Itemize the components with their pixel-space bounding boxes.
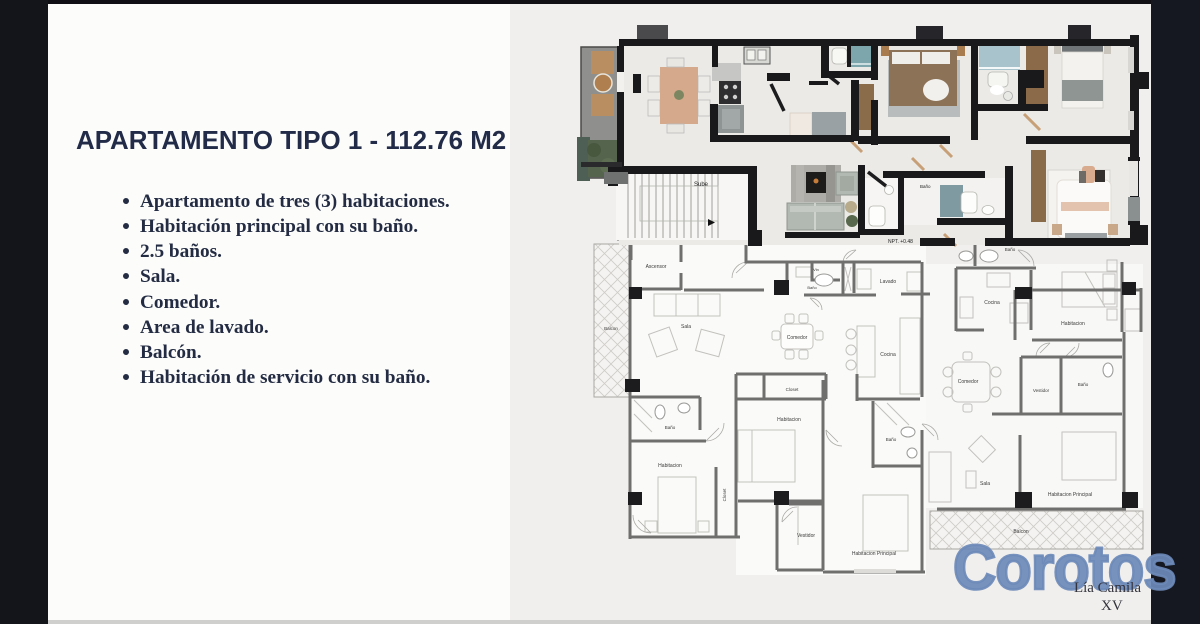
svg-text:Habitacion Principal: Habitacion Principal (1048, 492, 1092, 498)
svg-text:Habitacion: Habitacion (777, 417, 801, 423)
svg-text:Cocina: Cocina (984, 300, 1000, 306)
svg-text:Comedor: Comedor (958, 379, 979, 385)
svg-text:Comedor: Comedor (787, 335, 808, 341)
svg-text:Vin: Vin (813, 267, 819, 272)
svg-text:Vestidor: Vestidor (797, 533, 815, 539)
svg-text:Baño: Baño (920, 184, 931, 189)
svg-text:Sala: Sala (681, 324, 691, 330)
svg-text:Closet: Closet (722, 488, 727, 502)
svg-text:Habitacion: Habitacion (658, 463, 682, 469)
svg-text:Baño: Baño (886, 437, 897, 442)
svg-text:Vestidor: Vestidor (1033, 388, 1050, 393)
svg-text:Baño: Baño (665, 425, 676, 430)
svg-text:Closet: Closet (786, 387, 800, 392)
svg-text:Habitacion Principal: Habitacion Principal (852, 551, 896, 557)
svg-text:Baño: Baño (1005, 247, 1016, 252)
svg-text:Lavado: Lavado (880, 279, 897, 285)
svg-text:Sube: Sube (694, 182, 709, 188)
svg-text:Ascensor: Ascensor (646, 264, 667, 270)
svg-text:Sala: Sala (980, 481, 990, 487)
svg-text:Balcon: Balcon (604, 326, 618, 331)
svg-text:Cocina: Cocina (880, 352, 896, 358)
svg-text:Baño: Baño (807, 285, 817, 290)
svg-text:NPT. +0.48: NPT. +0.48 (888, 239, 913, 245)
svg-text:Baño: Baño (1078, 382, 1089, 387)
svg-text:Habitacion: Habitacion (1061, 321, 1085, 327)
